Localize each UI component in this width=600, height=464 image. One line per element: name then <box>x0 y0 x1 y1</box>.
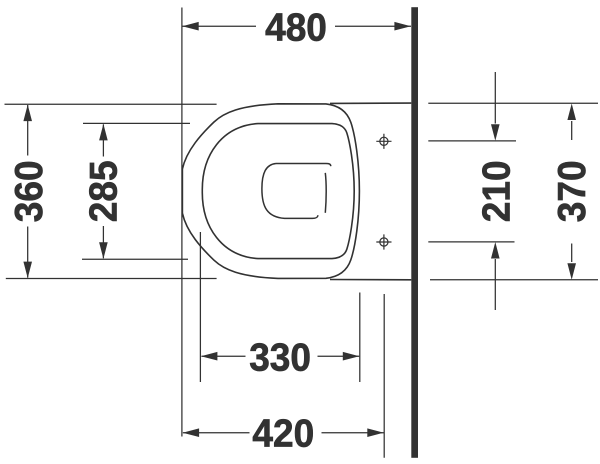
svg-text:210: 210 <box>475 160 518 222</box>
svg-text:285: 285 <box>83 160 126 222</box>
svg-text:330: 330 <box>249 336 311 379</box>
svg-text:370: 370 <box>551 160 594 222</box>
svg-text:420: 420 <box>252 413 314 456</box>
svg-text:360: 360 <box>8 160 51 222</box>
svg-text:480: 480 <box>265 6 327 49</box>
